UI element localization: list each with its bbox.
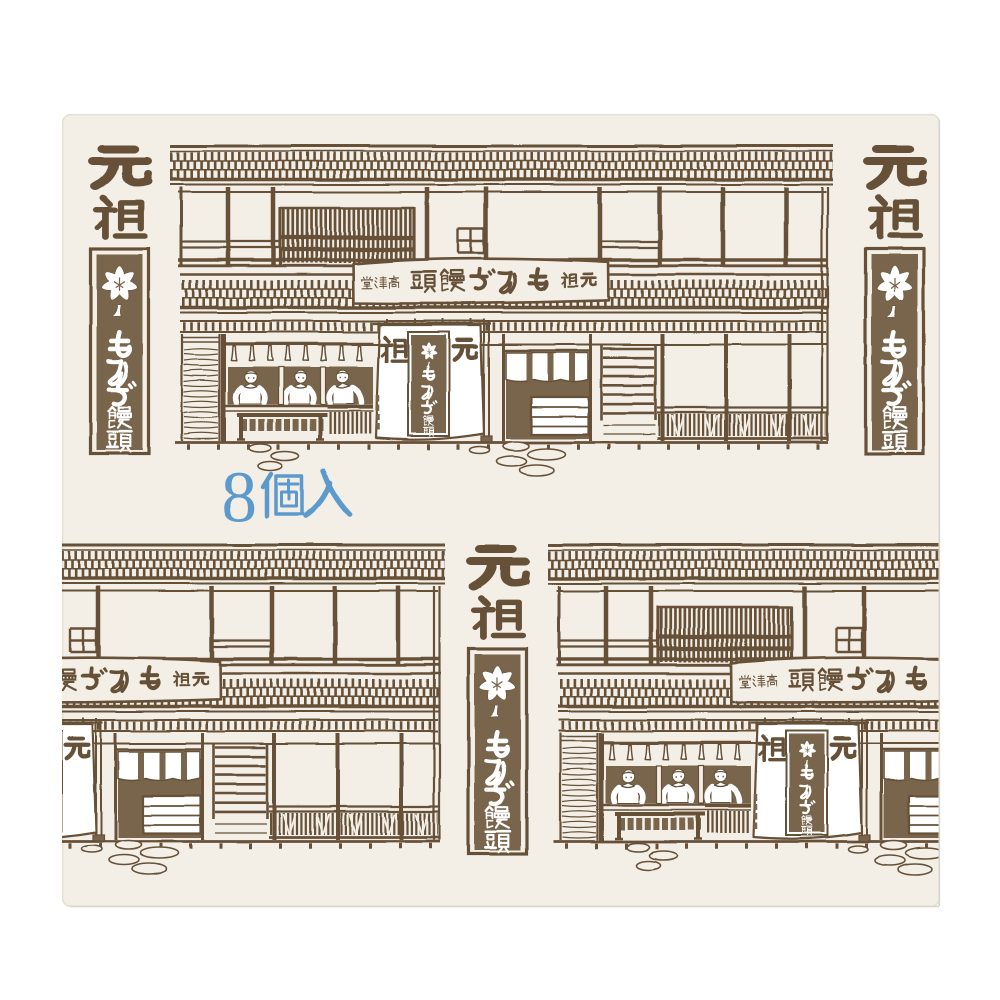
svg-text:8: 8 <box>221 457 257 537</box>
